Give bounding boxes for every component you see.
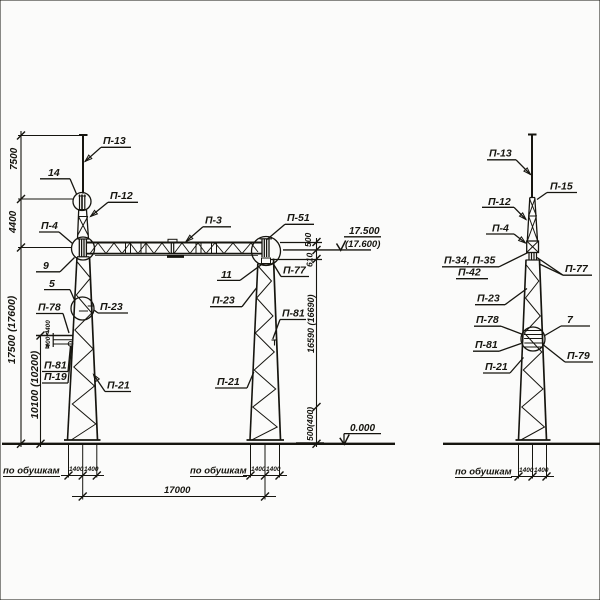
svg-text:П-15: П-15 [550,181,573,193]
svg-text:П-4: П-4 [492,223,509,235]
svg-text:по обушкам: по обушкам [455,467,512,478]
svg-text:17500 (17600): 17500 (17600) [6,295,18,364]
svg-text:по обушкам: по обушкам [3,466,60,477]
svg-text:1400: 1400 [519,467,534,474]
svg-text:П-12: П-12 [110,190,133,202]
svg-text:16590 (16690): 16590 (16690) [306,294,316,353]
svg-text:П-42: П-42 [458,267,481,279]
svg-text:П-3: П-3 [205,215,222,227]
svg-text:400: 400 [45,336,52,348]
svg-text:(17.600): (17.600) [345,239,380,250]
svg-text:0.000: 0.000 [350,423,375,434]
svg-text:1400: 1400 [534,467,549,474]
svg-text:610: 610 [305,253,315,267]
svg-text:500: 500 [303,233,313,247]
svg-text:по обушкам: по обушкам [190,466,247,477]
svg-text:П-13: П-13 [489,148,512,160]
svg-text:П-21: П-21 [217,376,240,388]
svg-text:7500: 7500 [9,147,20,170]
svg-text:4400: 4400 [8,210,19,234]
svg-text:П-78: П-78 [38,302,61,314]
svg-text:П-81: П-81 [282,308,305,320]
svg-text:5: 5 [49,278,55,290]
svg-text:П-77: П-77 [565,263,589,275]
svg-text:П-23: П-23 [212,295,235,307]
svg-text:1400: 1400 [84,466,99,473]
svg-text:П-51: П-51 [287,212,310,224]
svg-text:1400: 1400 [251,466,266,473]
svg-text:П-81: П-81 [44,360,67,372]
svg-text:П-23: П-23 [100,301,123,313]
svg-text:П-19: П-19 [44,371,67,383]
svg-text:9: 9 [43,260,49,272]
svg-text:П-4: П-4 [41,220,58,232]
svg-text:7: 7 [567,314,574,326]
svg-text:П-81: П-81 [475,339,498,351]
svg-text:П-23: П-23 [477,293,500,305]
svg-text:П-77: П-77 [283,265,307,277]
svg-text:14: 14 [48,167,60,179]
svg-text:П-13: П-13 [103,135,126,147]
svg-text:П-79: П-79 [567,350,590,362]
svg-text:П-21: П-21 [485,361,508,373]
svg-text:17.500: 17.500 [349,226,380,237]
svg-text:11: 11 [221,269,232,281]
svg-text:10100 (10200): 10100 (10200) [29,350,41,419]
svg-text:400: 400 [45,320,52,332]
svg-text:1400: 1400 [266,466,281,473]
svg-text:П-78: П-78 [476,314,499,326]
svg-text:17000: 17000 [164,485,191,496]
svg-text:1400: 1400 [69,466,84,473]
svg-text:П-21: П-21 [107,380,130,392]
svg-text:500(400): 500(400) [305,407,315,441]
svg-text:П-12: П-12 [488,196,511,208]
svg-text:П-34, П-35: П-34, П-35 [444,255,495,267]
